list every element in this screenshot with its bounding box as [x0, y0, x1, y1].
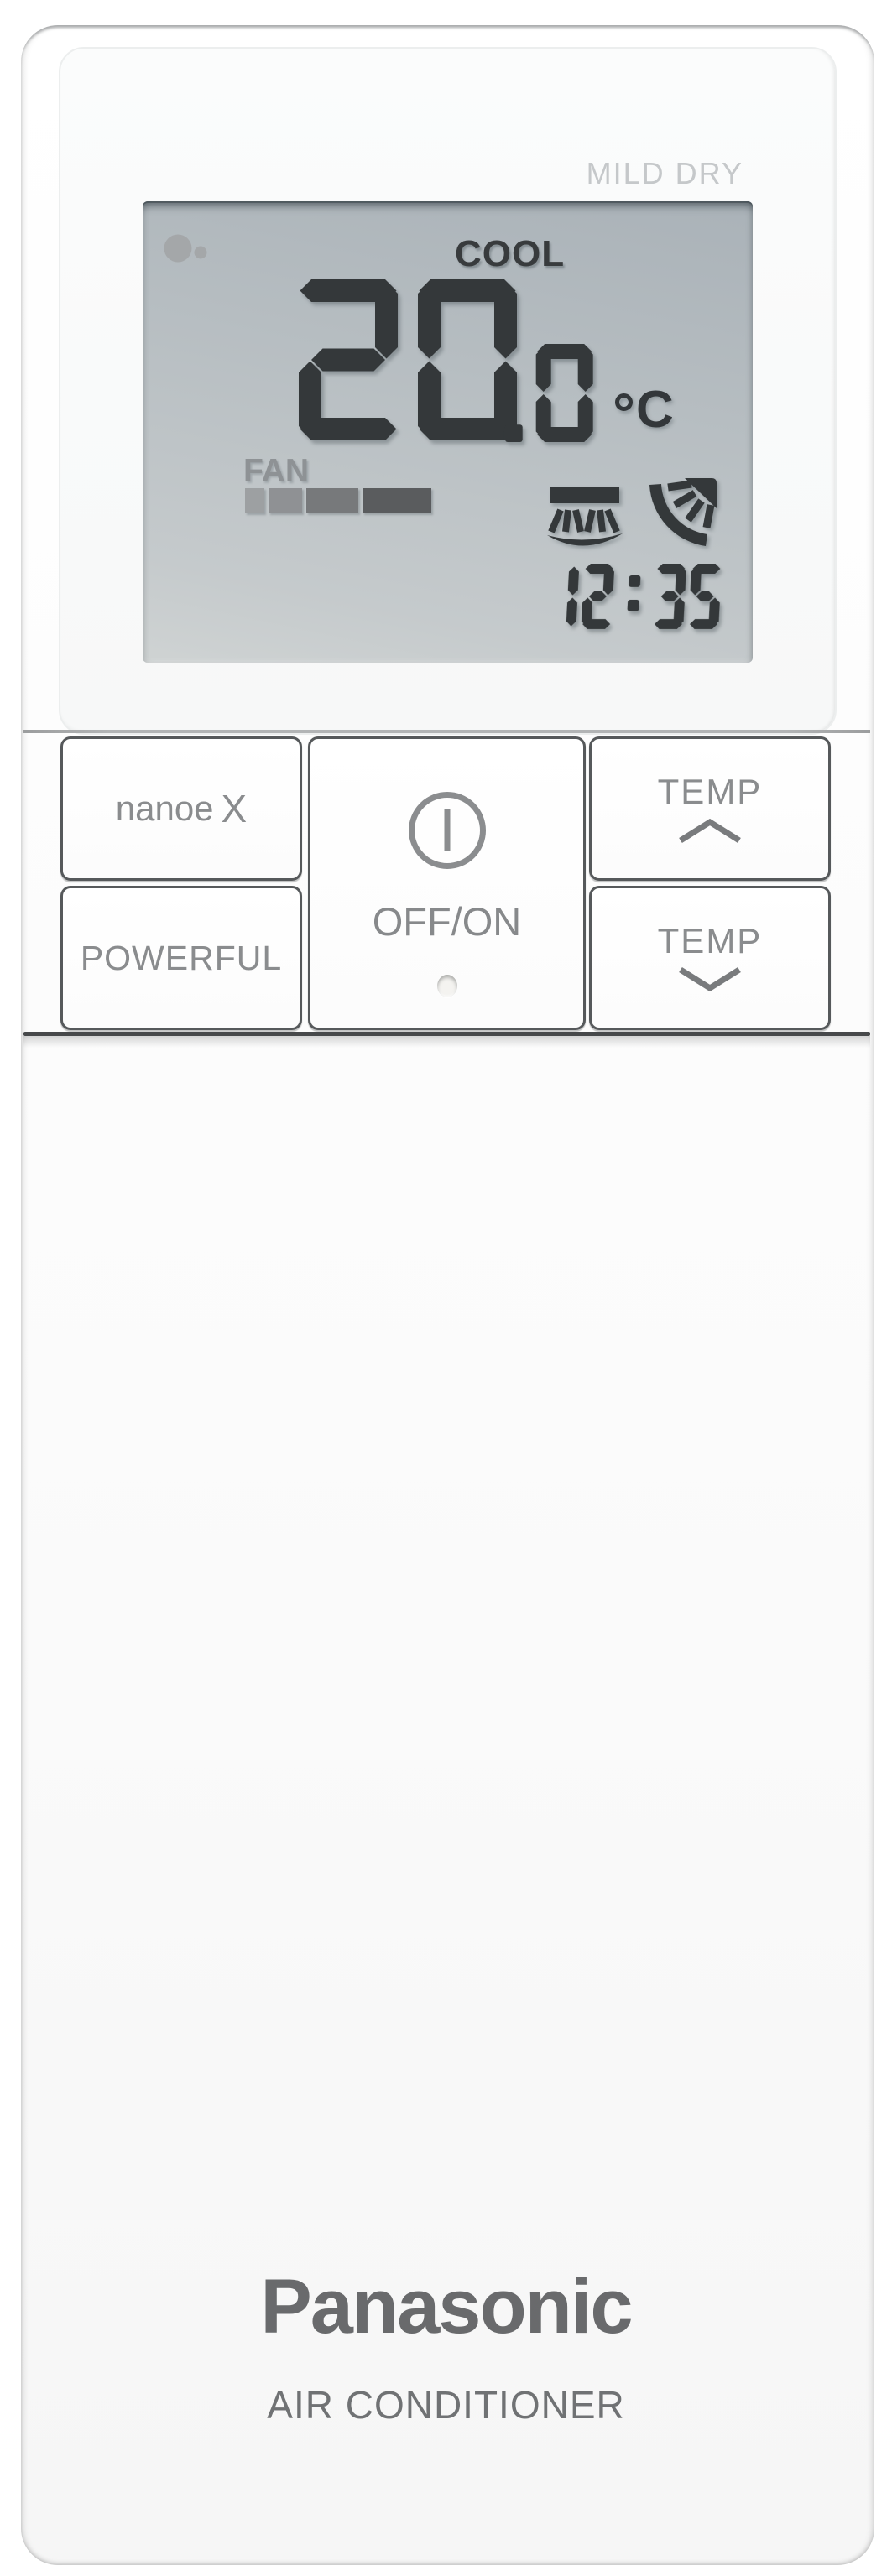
fan-bar	[245, 488, 264, 513]
lcd-display: COOL C FAN	[143, 201, 753, 663]
fan-bar	[306, 488, 358, 513]
nanoe-button-label: nanoe	[116, 788, 214, 829]
fan-label: FAN	[243, 453, 309, 490]
fan-bar	[269, 488, 302, 513]
temp-up-label: TEMP	[658, 772, 763, 812]
fan-speed-bars	[245, 488, 431, 513]
cover-hinge-shadow	[23, 1036, 870, 1048]
temp-down-button[interactable]: TEMP	[589, 886, 831, 1030]
panel-seam-line	[23, 730, 870, 733]
temperature-unit: C	[615, 388, 674, 433]
mode-indicator: COOL	[455, 233, 565, 275]
nanoe-button-x: X	[222, 786, 248, 831]
clock-display	[564, 564, 722, 629]
off-on-label: OFF/ON	[373, 898, 522, 945]
powerful-button-label: POWERFUL	[81, 939, 282, 978]
temperature-integer-digits	[299, 279, 517, 440]
brand-logo: Panasonic	[0, 2263, 892, 2351]
chevron-up-icon	[674, 815, 746, 846]
powerful-button[interactable]: POWERFUL	[60, 886, 302, 1030]
temp-up-button[interactable]: TEMP	[589, 736, 831, 881]
airswing-vertical-auto-icon	[544, 483, 624, 555]
model-feature-label: MILD DRY	[470, 156, 743, 191]
nanoe-x-button[interactable]: nanoe X	[60, 736, 302, 881]
transmit-led	[437, 975, 457, 997]
nanoe-icon	[164, 233, 216, 272]
power-icon	[406, 789, 488, 872]
degree-symbol	[615, 393, 633, 411]
chevron-down-icon	[674, 965, 746, 995]
off-on-button[interactable]: OFF/ON	[308, 736, 586, 1030]
fan-bar	[363, 488, 431, 513]
unit-letter: C	[636, 388, 674, 433]
temperature-fraction-digits	[505, 344, 593, 442]
panasonic-ac-remote: MILD DRY COOL C FAN	[0, 0, 892, 2576]
airswing-horizontal-auto-icon	[644, 478, 718, 549]
temp-down-label: TEMP	[658, 921, 763, 961]
product-label: AIR CONDITIONER	[0, 2382, 892, 2428]
